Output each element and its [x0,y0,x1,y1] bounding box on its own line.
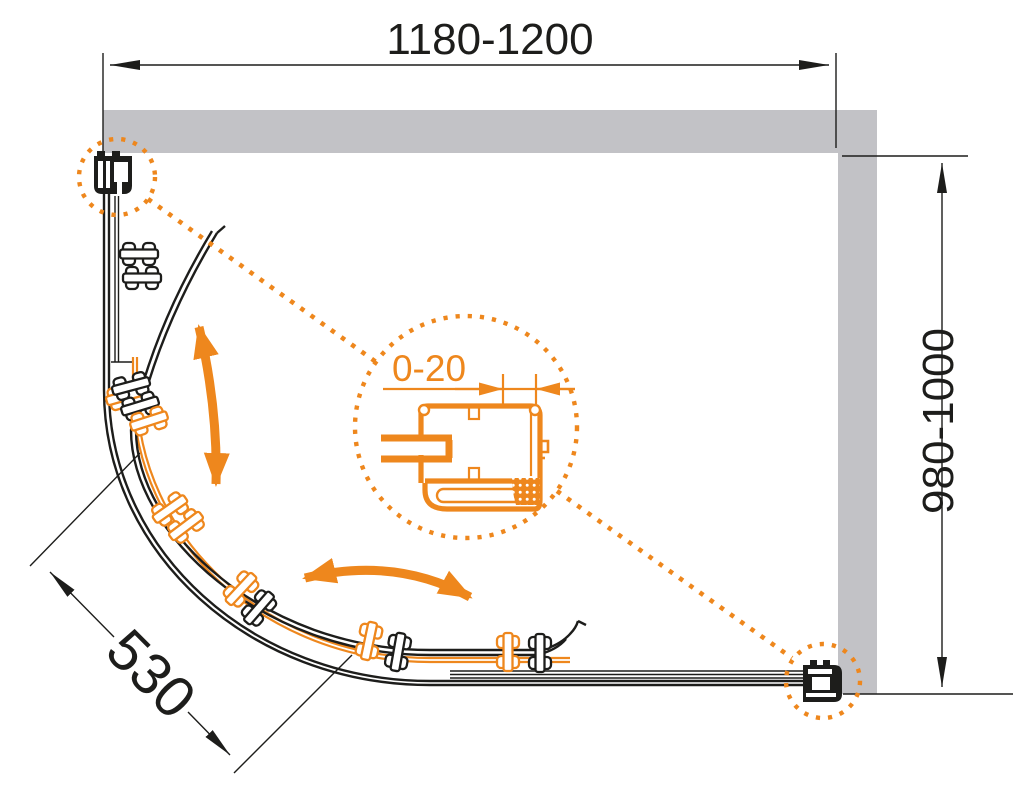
profile-shoe-slot [437,489,523,502]
extension-line [30,453,140,566]
profile-outer-wall [421,406,540,478]
profile-slot [106,161,110,188]
radius-dimension: 530 [30,453,352,773]
adjustment-dimension-label: 0-20 [392,348,466,389]
profile-cross-section [381,405,548,509]
door-tip-hook [578,621,586,625]
detail-leader-line-lower [557,491,792,658]
door-top-hook [217,226,225,233]
dimension-line [50,572,114,637]
roller-carriage-icon [529,634,551,672]
sliding-door-arc [131,226,586,655]
detail-view: 0-20 [355,316,577,538]
technical-drawing-canvas: 1180-1200 980-1000 530 [0,0,1024,800]
top-wall [103,110,877,153]
side-wall [838,153,877,694]
profile-slot [98,161,103,188]
roller-carriage-icon [497,633,519,671]
profile-slot [806,693,836,697]
frame-outer-line [104,193,803,685]
profile-slot [808,669,832,674]
walls [103,110,877,694]
glass-slot [117,168,122,194]
roller-carriage-icon [123,267,161,289]
door-swing-arrow-icon [199,327,216,484]
width-dimension-label: 1180-1200 [386,15,593,64]
roller-carriage-icon [120,243,158,265]
shower-enclosure-plan-diagram: 1180-1200 980-1000 530 [0,0,1024,800]
profile-slot [812,677,830,690]
fixed-frame-arc [104,193,803,685]
roller-carriage-icon [354,620,383,662]
detail-leader-line-upper [148,199,376,362]
depth-dimension-label: 980-1000 [914,328,963,514]
door-slide-arrow-icon [305,570,470,597]
door-edge [136,233,542,650]
profile-ear [419,405,429,415]
dimension-line [188,712,230,755]
adjustment-dimension: 0-20 [383,348,575,404]
profile-hatch-dots [512,478,540,505]
